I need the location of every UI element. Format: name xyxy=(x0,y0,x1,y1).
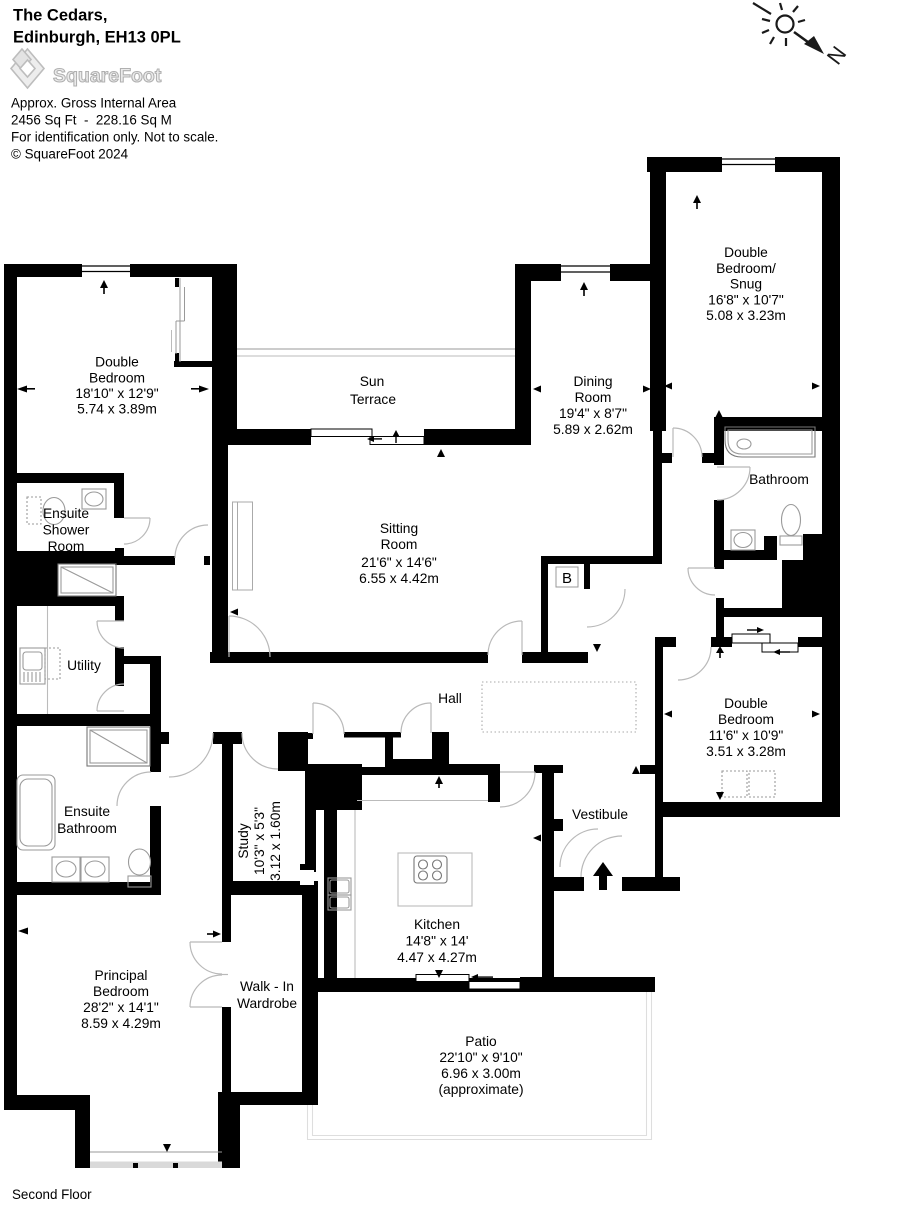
svg-text:Bathroom: Bathroom xyxy=(57,821,117,836)
svg-text:Room: Room xyxy=(381,537,418,552)
svg-text:4.47 x 4.27m: 4.47 x 4.27m xyxy=(397,950,477,965)
svg-text:28'2" x 14'1": 28'2" x 14'1" xyxy=(83,1000,159,1015)
svg-text:6.55 x 4.42m: 6.55 x 4.42m xyxy=(359,571,439,586)
svg-text:© SquareFoot 2024: © SquareFoot 2024 xyxy=(11,147,129,162)
svg-text:Wardrobe: Wardrobe xyxy=(237,996,297,1011)
svg-text:Bedroom: Bedroom xyxy=(718,712,774,727)
svg-text:21'6" x 14'6": 21'6" x 14'6" xyxy=(361,555,437,570)
svg-text:(approximate): (approximate) xyxy=(438,1082,523,1097)
svg-text:Kitchen: Kitchen xyxy=(414,917,460,932)
svg-text:Edinburgh, EH13 0PL: Edinburgh, EH13 0PL xyxy=(13,29,181,47)
svg-text:Hall: Hall xyxy=(438,691,462,706)
svg-text:Bathroom: Bathroom xyxy=(749,472,809,487)
svg-text:Double: Double xyxy=(724,696,768,711)
svg-text:22'10" x 9'10": 22'10" x 9'10" xyxy=(439,1050,522,1065)
svg-text:Study: Study xyxy=(236,823,251,858)
svg-text:Shower: Shower xyxy=(43,523,90,538)
svg-text:Sitting: Sitting xyxy=(380,521,418,536)
svg-text:The Cedars,: The Cedars, xyxy=(13,7,107,25)
svg-text:6.96 x 3.00m: 6.96 x 3.00m xyxy=(441,1066,521,1081)
svg-text:Dining: Dining xyxy=(573,374,612,389)
svg-text:Utility: Utility xyxy=(67,658,101,673)
svg-text:For identification only. Not t: For identification only. Not to scale. xyxy=(11,130,218,145)
svg-text:2456 Sq Ft - 228.16 Sq M: 2456 Sq Ft - 228.16 Sq M xyxy=(11,113,172,128)
svg-text:Bedroom: Bedroom xyxy=(89,371,145,386)
svg-text:3.12 x 1.60m: 3.12 x 1.60m xyxy=(268,801,283,881)
svg-text:Walk - In: Walk - In xyxy=(240,979,294,994)
svg-text:Snug: Snug xyxy=(730,277,762,292)
svg-text:16'8" x 10'7": 16'8" x 10'7" xyxy=(708,292,784,307)
svg-text:Patio: Patio xyxy=(465,1034,497,1049)
svg-text:B: B xyxy=(562,570,572,587)
svg-text:18'10" x 12'9": 18'10" x 12'9" xyxy=(75,386,158,401)
svg-text:Room: Room xyxy=(48,539,85,554)
svg-text:SquareFoot: SquareFoot xyxy=(53,65,162,87)
svg-text:5.08 x 3.23m: 5.08 x 3.23m xyxy=(706,308,786,323)
svg-text:Principal: Principal xyxy=(95,968,148,983)
svg-text:5.89 x 2.62m: 5.89 x 2.62m xyxy=(553,422,633,437)
svg-text:11'6" x 10'9": 11'6" x 10'9" xyxy=(709,728,784,743)
svg-text:10'3" x 5'3": 10'3" x 5'3" xyxy=(252,807,267,875)
svg-text:Vestibule: Vestibule xyxy=(572,807,628,822)
svg-text:Double: Double xyxy=(724,245,768,260)
svg-text:Ensuite: Ensuite xyxy=(43,506,89,521)
svg-text:8.59 x 4.29m: 8.59 x 4.29m xyxy=(81,1016,161,1031)
svg-text:Sun: Sun xyxy=(360,374,385,389)
svg-text:Approx. Gross Internal Area: Approx. Gross Internal Area xyxy=(11,96,177,111)
svg-text:5.74 x 3.89m: 5.74 x 3.89m xyxy=(77,402,157,417)
svg-text:Bedroom/: Bedroom/ xyxy=(716,261,776,276)
svg-text:Room: Room xyxy=(575,390,612,405)
svg-text:Ensuite: Ensuite xyxy=(64,804,110,819)
svg-text:Second Floor: Second Floor xyxy=(12,1187,92,1202)
svg-text:19'4" x 8'7": 19'4" x 8'7" xyxy=(559,406,627,421)
svg-text:Terrace: Terrace xyxy=(350,392,396,407)
svg-text:Double: Double xyxy=(95,355,139,370)
svg-text:Bedroom: Bedroom xyxy=(93,984,149,999)
svg-text:3.51 x 3.28m: 3.51 x 3.28m xyxy=(706,744,786,759)
svg-text:14'8" x 14': 14'8" x 14' xyxy=(405,934,468,949)
